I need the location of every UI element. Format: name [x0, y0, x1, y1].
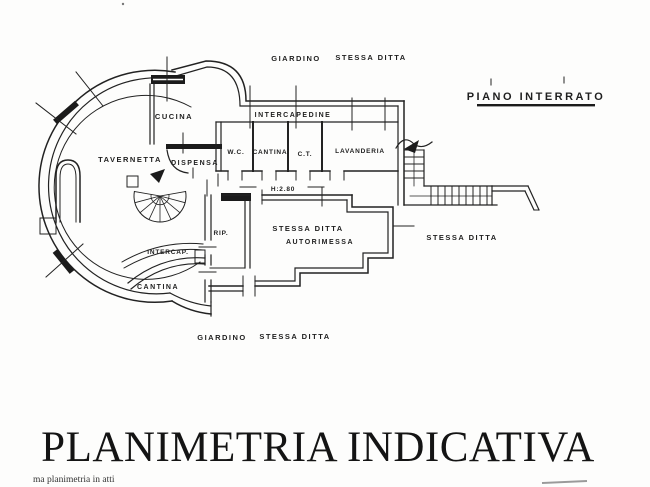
label-ct: C.T. — [298, 151, 313, 158]
label-intercapedine: INTERCAPEDINE — [255, 112, 332, 119]
document-footnote: ma planimetria in atti — [33, 475, 115, 485]
label-stessa-ditta-right: STESSA DITTA — [426, 233, 497, 242]
window-bar-icon — [55, 103, 77, 122]
label-stessa-ditta-top: STESSA DITTA — [335, 53, 406, 62]
label-cantina-lower: CANTINA — [137, 284, 179, 291]
label-giardino-bottom: GIARDINO — [197, 333, 247, 342]
label-intercap: INTERCAP. — [147, 249, 188, 256]
label-cantina-upper: CANTINA — [253, 149, 288, 156]
label-autorimessa: AUTORIMESSA — [286, 239, 354, 246]
label-rip: RIP. — [213, 230, 228, 237]
document-title: PLANIMETRIA INDICATIVA — [41, 424, 595, 471]
label-giardino-top: GIARDINO — [271, 54, 321, 63]
label-ceiling-height: H:2.80 — [271, 186, 295, 193]
label-cucina: CUCINA — [155, 112, 193, 121]
sheet-footer: PLANIMETRIA INDICATIVA ma planimetria in… — [33, 424, 595, 485]
round-room-walls — [36, 70, 211, 316]
label-lavanderia: LAVANDERIA — [335, 148, 385, 155]
plan-title-underline — [477, 104, 595, 106]
cucina-walls — [150, 57, 185, 153]
label-stessa-ditta-bottom: STESSA DITTA — [259, 332, 330, 341]
spiral-stair-icon — [127, 169, 186, 222]
arch-niche — [40, 160, 80, 234]
label-wc: W.C. — [227, 149, 244, 156]
label-tavernetta: TAVERNETTA — [98, 155, 162, 164]
stair-arrow-icon — [150, 169, 165, 183]
label-dispensa: DISPENSA — [171, 160, 219, 167]
floor-plan-drawing: GIARDINO STESSA DITTA PIANO INTERRATO CU… — [0, 0, 650, 487]
label-stessa-ditta-garage: STESSA DITTA — [272, 224, 343, 233]
plan-title: PIANO INTERRATO — [467, 91, 606, 103]
external-stairs — [396, 140, 539, 210]
floor-plan-sheet: GIARDINO STESSA DITTA PIANO INTERRATO CU… — [0, 0, 650, 487]
